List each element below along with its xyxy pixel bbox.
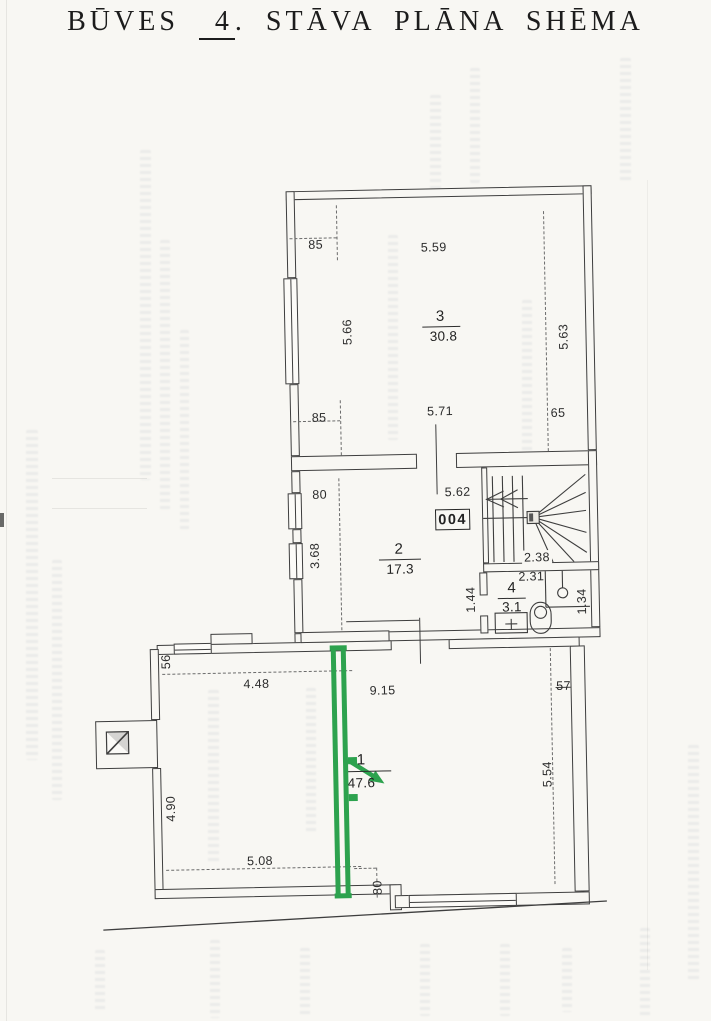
dim-4-48: 4.48 bbox=[243, 677, 269, 692]
scanned-floor-plan-page: BŪVES 4. STĀVA PLĀNA SHĒMA bbox=[0, 0, 711, 1021]
room-1-area: 47.6 bbox=[348, 775, 376, 791]
floor-plan-drawing: 85 5.59 5.66 5.63 85 5.71 65 80 5.62 3.6… bbox=[0, 0, 711, 1021]
facade-outer-edge bbox=[103, 901, 607, 930]
room-2-area: 17.3 bbox=[386, 561, 414, 577]
dim-2-31: 2.31 bbox=[518, 569, 544, 584]
dim-5-59: 5.59 bbox=[421, 240, 447, 255]
dim-offset-56: 56 bbox=[159, 654, 173, 669]
dim-1-34: 1.34 bbox=[575, 588, 590, 614]
dim-offset-65: 65 bbox=[551, 406, 566, 420]
room-4-number: 4 bbox=[507, 579, 516, 596]
dim-4-90: 4.90 bbox=[164, 796, 179, 822]
room-4-area: 3.1 bbox=[502, 599, 522, 614]
dim-offset-80-bottom: 80 bbox=[370, 880, 384, 895]
dim-offset-80-mid: 80 bbox=[312, 488, 327, 502]
dim-9-15: 9.15 bbox=[369, 683, 395, 698]
dim-5-62: 5.62 bbox=[445, 485, 471, 500]
dim-1-44: 1.44 bbox=[464, 587, 479, 613]
highlight-wall-tick-2 bbox=[349, 794, 358, 801]
toilet-tank-icon bbox=[534, 606, 546, 618]
room-3-number: 3 bbox=[436, 308, 445, 325]
highlight-wall-tick-1 bbox=[348, 757, 357, 764]
room-3-area: 30.8 bbox=[430, 328, 458, 344]
room-2-number: 2 bbox=[394, 541, 403, 558]
dim-offset-85-top: 85 bbox=[308, 238, 323, 252]
highlight-wall-cap-bottom bbox=[335, 893, 352, 898]
dim-2-38: 2.38 bbox=[522, 550, 552, 565]
dim-5-71: 5.71 bbox=[427, 404, 453, 419]
chimney-flue-icon bbox=[106, 732, 128, 754]
dim-5-54: 5.54 bbox=[540, 761, 555, 787]
room-1-number: 1 bbox=[357, 751, 366, 768]
dim-5-63: 5.63 bbox=[556, 324, 571, 350]
dim-3-68: 3.68 bbox=[308, 543, 323, 569]
stair-direction-arrow-icon bbox=[486, 490, 528, 509]
dim-offset-57: 57 bbox=[556, 679, 571, 693]
dim-5-66: 5.66 bbox=[340, 319, 355, 345]
dim-offset-85-bottom: 85 bbox=[312, 411, 327, 425]
plan-linework bbox=[0, 0, 711, 1021]
drain-icon bbox=[558, 588, 568, 598]
door-plate-004: 004 bbox=[435, 509, 470, 531]
dim-5-08: 5.08 bbox=[247, 854, 273, 869]
